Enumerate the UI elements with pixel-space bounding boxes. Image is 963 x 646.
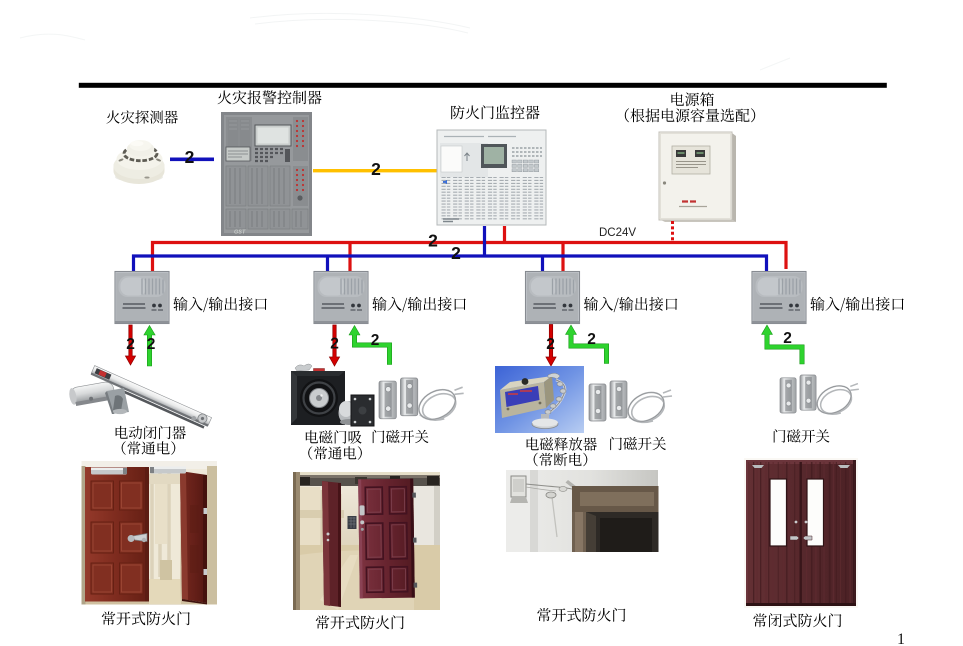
svg-text:2: 2 — [330, 336, 339, 353]
svg-text:2: 2 — [185, 147, 195, 167]
svg-text:2: 2 — [371, 159, 381, 179]
svg-text:1: 1 — [897, 631, 905, 646]
svg-text:2: 2 — [451, 243, 461, 263]
svg-text:GST: GST — [234, 230, 246, 236]
svg-text:2: 2 — [587, 331, 596, 348]
svg-text:2: 2 — [783, 330, 792, 347]
svg-text:2: 2 — [371, 332, 380, 349]
svg-text:2: 2 — [126, 336, 135, 353]
svg-text:2: 2 — [428, 231, 438, 251]
svg-text:2: 2 — [147, 336, 156, 353]
svg-text:2: 2 — [546, 336, 555, 353]
svg-text:DC24V: DC24V — [599, 227, 636, 239]
